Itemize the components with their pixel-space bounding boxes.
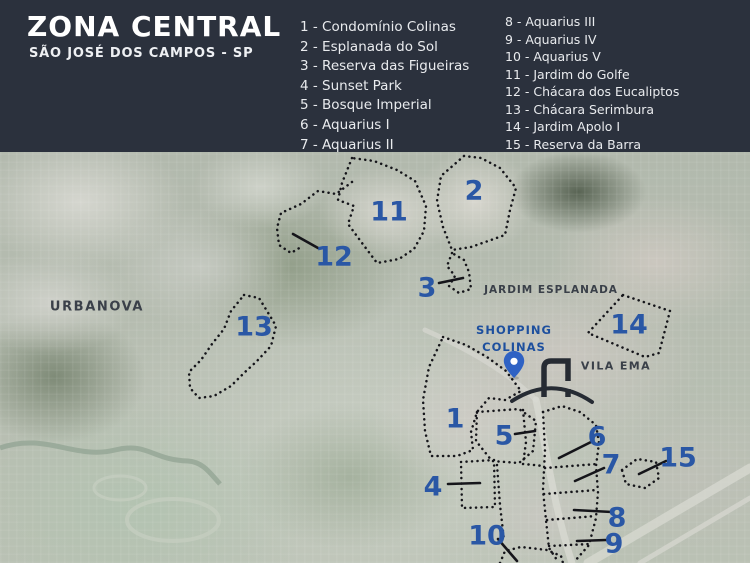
area-label-3: 3	[418, 273, 437, 304]
area-label-7: 7	[602, 450, 621, 481]
leader-8	[574, 510, 612, 512]
main-road	[536, 400, 572, 563]
area-label-4: 4	[424, 472, 443, 503]
outline-inner-2	[523, 464, 544, 466]
outline-strip-div-6-7	[545, 464, 597, 468]
area-label-2: 2	[465, 176, 484, 207]
infographic-page: ZONA CENTRAL SÃO JOSÉ DOS CAMPOS - SP 1 …	[0, 0, 750, 563]
place-label-urbanova: URBANOVA	[50, 300, 144, 315]
outline-strip-div-8-9	[547, 516, 596, 520]
area-label-11: 11	[370, 197, 408, 228]
shopping-label-line1: SHOPPING	[476, 322, 552, 339]
outline-inner-1	[523, 410, 526, 464]
leader-6	[559, 442, 591, 458]
area-label-1: 1	[446, 404, 465, 435]
leader-7	[575, 468, 604, 481]
leader-4	[448, 483, 480, 484]
leader-9	[577, 540, 606, 541]
place-label-shopping-colinas: SHOPPING COLINAS	[476, 322, 552, 356]
highway-road-2	[640, 498, 750, 563]
outline-area-10	[500, 547, 563, 563]
area-label-10: 10	[468, 521, 506, 552]
area-label-6: 6	[588, 422, 607, 453]
map-drawing	[0, 0, 750, 563]
area-label-15: 15	[659, 443, 697, 474]
area-label-9: 9	[605, 529, 624, 560]
shopping-label-line2: COLINAS	[476, 339, 552, 356]
area-label-14: 14	[610, 310, 648, 341]
sports-field	[94, 476, 146, 500]
sports-track	[127, 499, 219, 541]
place-label-vila-ema: VILA EMA	[581, 360, 651, 373]
place-label-jardim-esplanada: JARDIM ESPLANADA	[484, 284, 618, 296]
outline-area-3	[447, 253, 471, 293]
leader-5	[515, 431, 535, 434]
outline-area-13	[189, 295, 276, 398]
area-label-12: 12	[315, 242, 353, 273]
area-label-5: 5	[495, 421, 514, 452]
area-label-13: 13	[235, 312, 273, 343]
